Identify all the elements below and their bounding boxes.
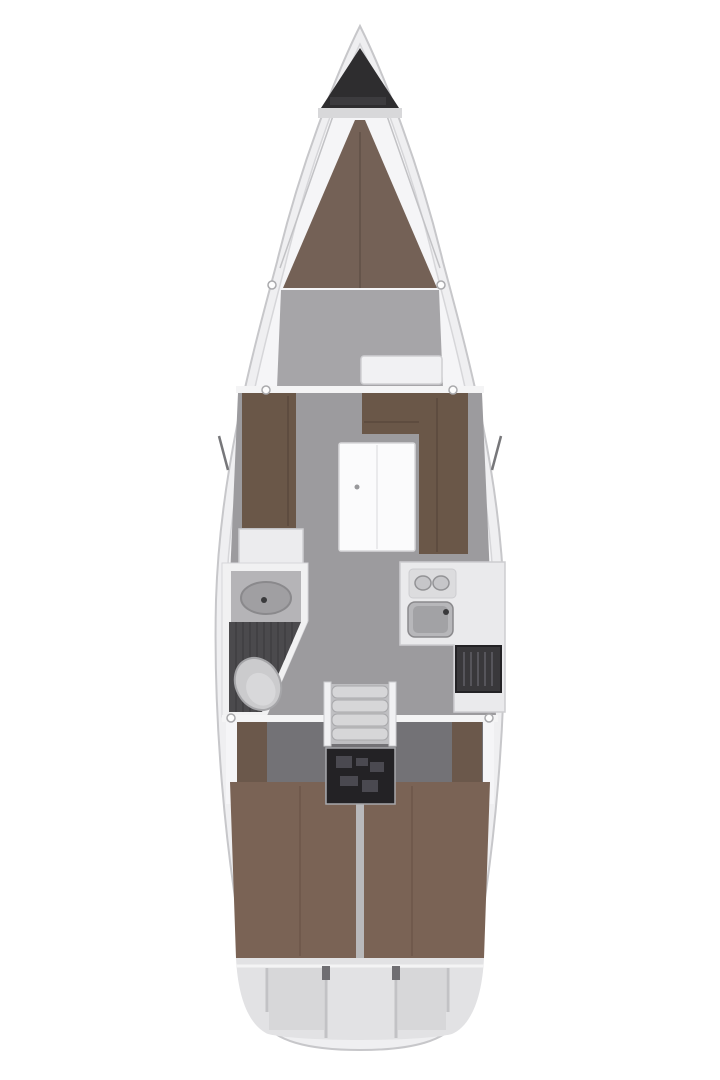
deck-fitting xyxy=(268,281,276,289)
head-faucet xyxy=(261,597,267,603)
table-dot xyxy=(355,485,360,490)
windlass-band xyxy=(318,108,402,118)
starboard-aft-berth xyxy=(364,782,490,958)
starboard-wardrobe xyxy=(452,722,482,784)
chainplate-starboard xyxy=(492,436,501,470)
step-tread-1 xyxy=(332,686,388,698)
deck-fitting xyxy=(449,386,457,394)
chainplate-port xyxy=(219,436,228,470)
port-wardrobe xyxy=(237,722,267,784)
deck-fitting xyxy=(227,714,235,722)
forward-bench xyxy=(361,356,442,384)
windlass-bar xyxy=(330,97,386,105)
boat-floor-plan xyxy=(0,0,720,1080)
floor-plan-drawing xyxy=(0,0,720,1080)
burner-right-icon xyxy=(433,576,449,590)
step-tread-2 xyxy=(332,700,388,712)
aft-berth-divider xyxy=(356,804,364,958)
companionway-rail-port xyxy=(324,682,331,746)
lazarette-hinge-starboard xyxy=(392,966,400,980)
galley-faucet xyxy=(443,609,449,615)
deck-fitting xyxy=(485,714,493,722)
port-cabinet xyxy=(239,529,303,566)
deck-fitting xyxy=(262,386,270,394)
stern-panel-starboard xyxy=(398,968,446,1030)
companionway-rail-starboard xyxy=(389,682,396,746)
stern-panel-port xyxy=(269,968,324,1030)
galley-sink-basin xyxy=(413,606,448,633)
burner-left-icon xyxy=(415,576,431,590)
step-tread-3 xyxy=(332,714,388,726)
lazarette-hinge-port xyxy=(322,966,330,980)
port-aft-berth xyxy=(230,782,356,958)
forward-bulkhead xyxy=(236,386,484,393)
deck-fitting xyxy=(437,281,445,289)
step-tread-4 xyxy=(332,728,388,740)
